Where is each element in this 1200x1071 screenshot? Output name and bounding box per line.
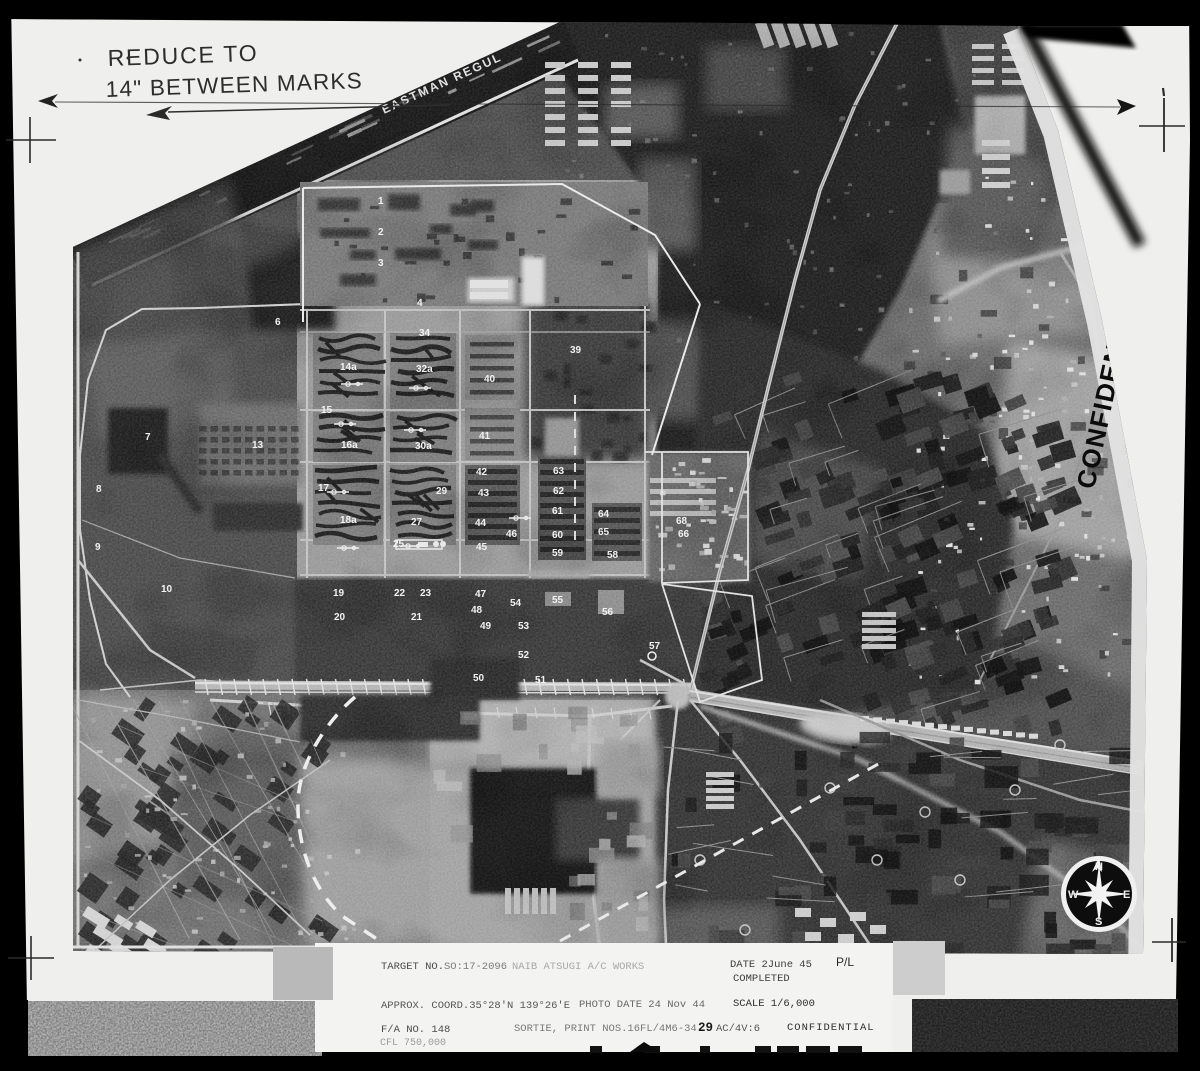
svg-text:F/A NO. 148: F/A NO. 148	[381, 1024, 450, 1036]
svg-text:W: W	[1068, 889, 1079, 901]
svg-text:14a: 14a	[340, 362, 357, 373]
svg-text:55: 55	[552, 595, 564, 606]
svg-text:SORTIE, PRINT NOS.16FL/4M6-34: SORTIE, PRINT NOS.16FL/4M6-34	[514, 1023, 697, 1035]
svg-text:48: 48	[471, 605, 483, 616]
svg-text:10: 10	[161, 584, 173, 595]
svg-text:59: 59	[552, 548, 564, 559]
svg-text:P/L: P/L	[836, 955, 854, 969]
svg-text:APPROX. COORD.35°28'N 139°26'E: APPROX. COORD.35°28'N 139°26'E	[381, 1000, 570, 1012]
svg-text:COMPLETED: COMPLETED	[733, 973, 790, 985]
svg-text:23: 23	[420, 588, 432, 599]
svg-text:DATE 2June 45: DATE 2June 45	[730, 959, 812, 971]
svg-text:CFL 750,000: CFL 750,000	[380, 1038, 446, 1049]
svg-text:62: 62	[553, 486, 565, 497]
svg-text:PHOTO DATE 24 Nov 44: PHOTO DATE 24 Nov 44	[579, 999, 705, 1011]
svg-text:2: 2	[378, 227, 384, 238]
svg-text:15: 15	[321, 405, 333, 416]
svg-text:6: 6	[275, 317, 281, 328]
svg-text:43: 43	[478, 488, 490, 499]
svg-text:29: 29	[436, 486, 448, 497]
svg-text:N: N	[1095, 861, 1103, 873]
svg-text:53: 53	[518, 621, 530, 632]
svg-text:40: 40	[484, 374, 496, 385]
svg-text:19: 19	[333, 588, 345, 599]
svg-text:29: 29	[698, 1021, 713, 1035]
svg-text:54: 54	[510, 598, 522, 609]
svg-text:45: 45	[476, 542, 488, 553]
svg-text:1: 1	[378, 196, 384, 207]
svg-text:18a: 18a	[340, 515, 357, 526]
svg-text:61: 61	[552, 506, 564, 517]
svg-text:39: 39	[570, 345, 582, 356]
svg-text:21: 21	[411, 612, 423, 623]
svg-text:17: 17	[318, 483, 330, 494]
svg-text:49: 49	[480, 621, 492, 632]
svg-text:51: 51	[535, 675, 547, 686]
svg-text:22: 22	[394, 588, 406, 599]
svg-text:57: 57	[649, 641, 661, 652]
svg-text:68: 68	[676, 516, 688, 527]
svg-text:20: 20	[334, 612, 346, 623]
svg-text:56: 56	[602, 607, 614, 618]
svg-text:63: 63	[553, 466, 565, 477]
svg-text:27: 27	[411, 517, 423, 528]
svg-text:65: 65	[598, 527, 610, 538]
svg-text:50: 50	[473, 673, 485, 684]
svg-text:NAIB ATSUGI A/C WORKS: NAIB ATSUGI A/C WORKS	[512, 961, 644, 973]
svg-text:25: 25	[393, 539, 405, 550]
svg-text:32a: 32a	[416, 364, 433, 375]
svg-text:3: 3	[378, 258, 384, 269]
svg-text:7: 7	[145, 432, 151, 443]
svg-text:42: 42	[476, 467, 488, 478]
svg-text:4: 4	[417, 298, 423, 309]
svg-text:64: 64	[598, 509, 610, 520]
svg-text:47: 47	[475, 589, 487, 600]
svg-text:AC/4V:6: AC/4V:6	[716, 1023, 760, 1035]
svg-text:44: 44	[475, 518, 487, 529]
svg-text:66: 66	[678, 529, 690, 540]
svg-text:9: 9	[95, 542, 101, 553]
svg-text:TARGET NO.: TARGET NO.	[381, 961, 444, 973]
svg-text:34: 34	[419, 328, 431, 339]
svg-text:46: 46	[506, 529, 518, 540]
svg-text:41: 41	[479, 431, 491, 442]
svg-text:13: 13	[252, 440, 264, 451]
svg-text:30a: 30a	[415, 441, 432, 452]
svg-text:SCALE 1/6,000: SCALE 1/6,000	[733, 998, 815, 1010]
svg-text:58: 58	[607, 550, 619, 561]
svg-text:SO:17-2096: SO:17-2096	[444, 961, 507, 973]
svg-text:REDUCE TO: REDUCE TO	[107, 40, 259, 71]
svg-text:16a: 16a	[341, 440, 358, 451]
svg-text:8: 8	[96, 484, 102, 495]
svg-text:52: 52	[518, 650, 530, 661]
svg-text:60: 60	[552, 530, 564, 541]
svg-text:E: E	[1123, 889, 1130, 901]
svg-text:S: S	[1095, 916, 1102, 928]
svg-text:CONFIDENTIAL: CONFIDENTIAL	[787, 1022, 875, 1034]
